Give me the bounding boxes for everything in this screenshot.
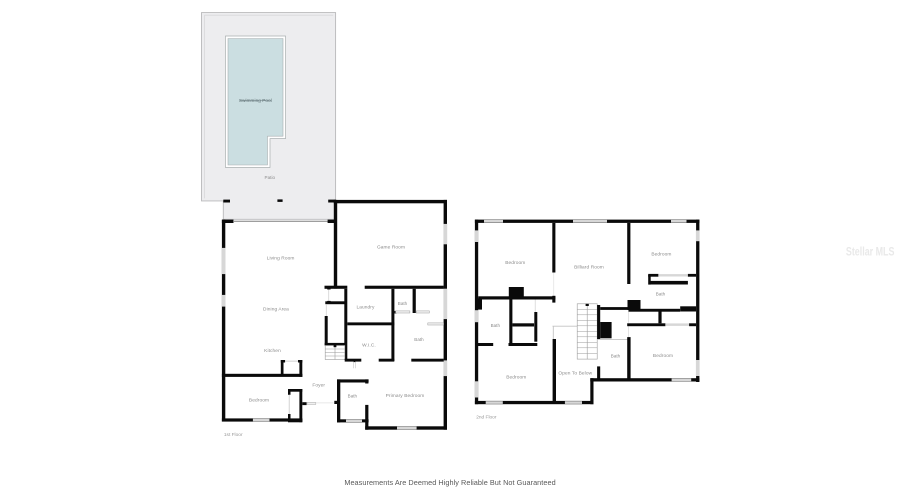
svg-text:Billiard Room: Billiard Room bbox=[574, 264, 604, 270]
svg-text:Kitchen: Kitchen bbox=[264, 348, 281, 354]
svg-text:Bedroom: Bedroom bbox=[653, 353, 673, 359]
svg-text:Bedroom: Bedroom bbox=[505, 260, 525, 266]
svg-text:Bedroom: Bedroom bbox=[651, 251, 671, 257]
svg-text:Stellar MLS: Stellar MLS bbox=[846, 246, 895, 258]
svg-text:Dining Area: Dining Area bbox=[263, 306, 289, 312]
svg-text:Living Room: Living Room bbox=[267, 255, 295, 261]
svg-text:2nd Floor: 2nd Floor bbox=[476, 414, 497, 420]
svg-text:Foyer: Foyer bbox=[312, 382, 325, 388]
svg-text:Bedroom: Bedroom bbox=[506, 374, 526, 380]
svg-text:Bath: Bath bbox=[398, 301, 408, 306]
svg-text:Bath: Bath bbox=[611, 354, 621, 359]
svg-text:Primary Bedroom: Primary Bedroom bbox=[386, 393, 425, 399]
svg-text:W.I.C.: W.I.C. bbox=[362, 342, 376, 348]
svg-text:Patio: Patio bbox=[265, 175, 276, 180]
svg-text:Laundry: Laundry bbox=[356, 304, 375, 310]
svg-text:Bedroom: Bedroom bbox=[249, 397, 269, 403]
svg-text:Bath: Bath bbox=[414, 337, 424, 342]
svg-text:Open To Below: Open To Below bbox=[558, 370, 592, 376]
svg-text:Bath: Bath bbox=[491, 323, 501, 328]
svg-text:Bath: Bath bbox=[348, 393, 358, 398]
svg-text:Measurements Are Deemed Highly: Measurements Are Deemed Highly Reliable … bbox=[344, 478, 555, 487]
svg-text:Bath: Bath bbox=[656, 292, 666, 297]
svg-text:1st Floor: 1st Floor bbox=[224, 432, 243, 438]
svg-text:Game Room: Game Room bbox=[377, 244, 405, 250]
